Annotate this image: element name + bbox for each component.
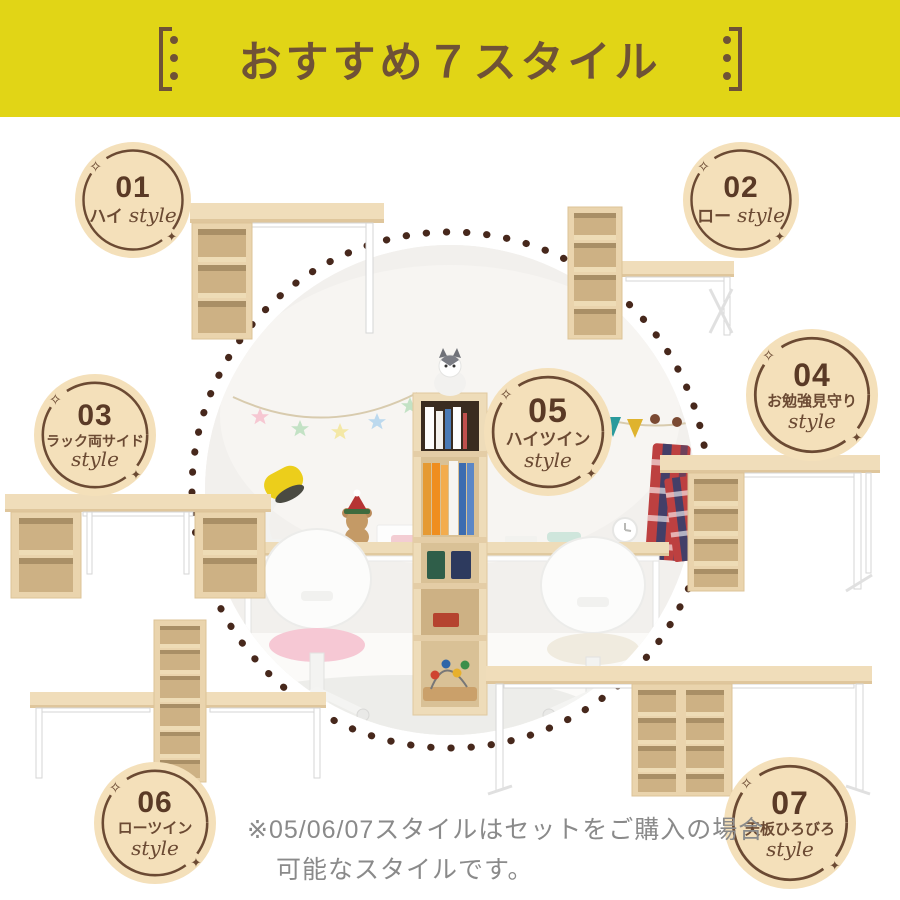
style-badge-03: ✧ ✦ 03 ラック両サイド style <box>34 374 156 496</box>
sparkle-icon: ✧ <box>499 385 512 405</box>
bracket-left-decoration <box>159 27 187 91</box>
page-title: おすすめ７スタイル <box>239 28 662 90</box>
dot-icon <box>723 72 731 80</box>
sparkle-icon: ✧ <box>89 157 102 177</box>
alarm-clock <box>613 518 637 542</box>
style-badge-04: ✧ ✦ 04 お勉強見守り style <box>746 329 878 461</box>
sparkle-icon: ✦ <box>774 229 785 245</box>
sparkle-icon: ✦ <box>166 229 177 245</box>
dot-icon <box>170 72 178 80</box>
style-badge-05: ✧ ✦ 05 ハイツイン style <box>484 368 612 496</box>
style-badge-06: ✧ ✦ 06 ローツイン style <box>94 762 216 884</box>
bracket-right-decoration <box>714 27 742 91</box>
footnote: ※05/06/07スタイルはセットをご購入の場合 可能なスタイルです。 <box>247 810 764 890</box>
dot-icon <box>170 36 178 44</box>
footnote-line2: 可能なスタイルです。 <box>247 850 764 890</box>
sparkle-icon: ✧ <box>697 157 710 177</box>
desk-illustration-03-rack-both-sides <box>3 488 273 603</box>
sparkle-icon: ✦ <box>829 858 840 874</box>
shelf-tower <box>413 393 487 715</box>
sparkle-icon: ✦ <box>586 466 597 482</box>
desk-illustration-06-low-twin <box>28 616 328 786</box>
desk-illustration-04-watch-over <box>658 443 883 603</box>
desk-illustration-01-high <box>188 193 388 343</box>
footnote-line1: ※05/06/07スタイルはセットをご購入の場合 <box>247 810 764 850</box>
bracket-dots <box>723 36 731 80</box>
bracket-dots <box>170 36 178 80</box>
style-badge-01: ✧ ✦ 01 ハイ style <box>75 142 191 258</box>
papers <box>505 536 537 543</box>
sparkle-icon: ✧ <box>762 346 775 366</box>
sparkle-icon: ✧ <box>109 778 122 798</box>
dot-icon <box>723 36 731 44</box>
style-badge-02: ✧ ✦ 02 ロー style <box>683 142 799 258</box>
sparkle-icon: ✧ <box>740 774 753 794</box>
sparkle-icon: ✦ <box>130 467 141 483</box>
sparkle-icon: ✦ <box>851 430 862 446</box>
sparkle-icon: ✧ <box>49 390 62 410</box>
sparkle-icon: ✦ <box>190 855 201 871</box>
product-infographic: おすすめ７スタイル <box>0 0 900 900</box>
dot-icon <box>723 54 731 62</box>
header-banner: おすすめ７スタイル <box>0 0 900 117</box>
dot-icon <box>170 54 178 62</box>
